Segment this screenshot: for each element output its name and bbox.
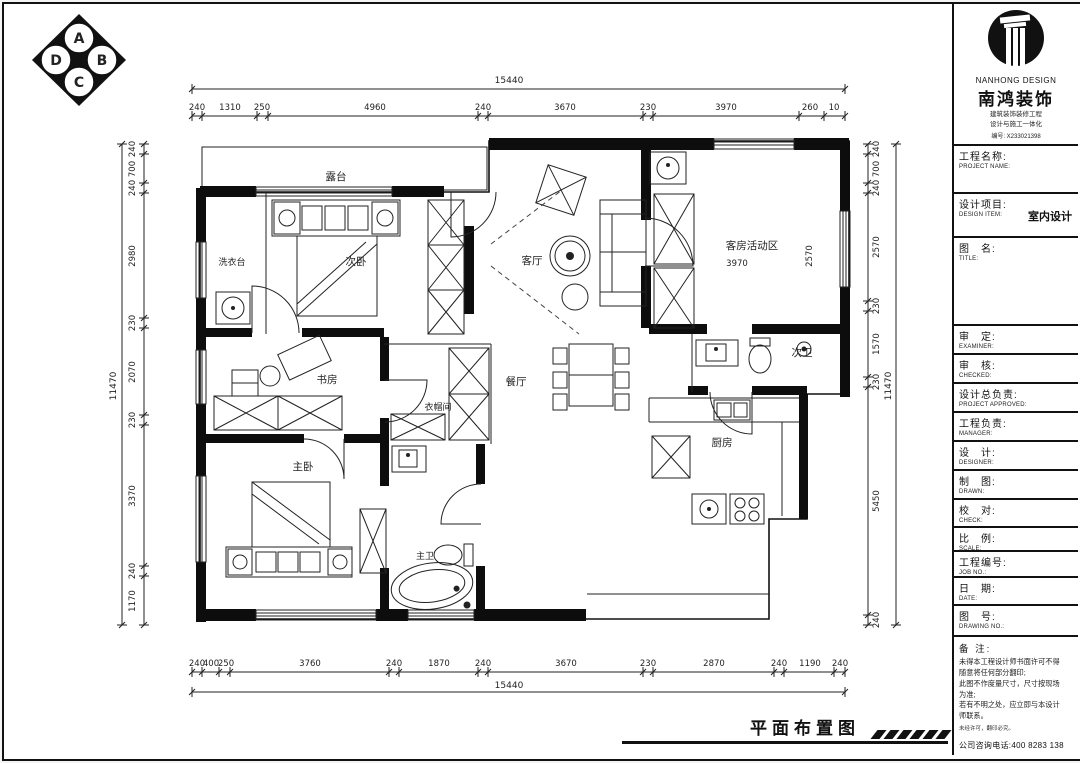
- tb-row-en: DESIGNER:: [959, 460, 1073, 466]
- dim-bot-1: 400: [203, 659, 219, 669]
- dim-bottom-overall: 15440: [495, 681, 524, 691]
- dim-left-4: 230: [128, 315, 138, 331]
- label-dining: 餐厅: [506, 375, 527, 388]
- dim-top-0: 240: [189, 103, 205, 113]
- wardrobe2-icon: [428, 200, 464, 334]
- dim-right-overall: 11470: [884, 371, 894, 400]
- logo-letter-c: C: [74, 75, 84, 91]
- tb-row-date: 日 期: DATE:: [954, 578, 1078, 607]
- label-study: 书房: [317, 373, 338, 386]
- label-guest-w: 3970: [726, 259, 748, 269]
- tb-row-drawn: 制 图: DRAWN:: [954, 471, 1078, 500]
- tb-row-title: 图 名: TITLE:: [954, 238, 1078, 326]
- tb-row-cn: 工程编号:: [959, 554, 1073, 569]
- dim-left-1: 700: [128, 161, 138, 177]
- tb-row-cn: 日 期:: [959, 580, 1073, 595]
- master-wardrobe-icon: [360, 509, 386, 573]
- tb-row-cn: 校 对:: [959, 502, 1073, 517]
- dim-right-8: 240: [872, 612, 882, 628]
- floor-plan-drawing: A B C D 15440 240 1310 250 4960 240 3670…: [4, 4, 952, 755]
- drawing-title: 平面布置图: [750, 714, 860, 739]
- tb-row-cn: 图 名:: [959, 240, 1073, 255]
- dim-bot-5: 1870: [428, 659, 450, 669]
- label-laundry: 洗衣台: [218, 256, 245, 268]
- drawing-sheet: A B C D 15440 240 1310 250 4960 240 3670…: [2, 2, 1080, 761]
- tb-row-cn: 工程名称:: [959, 148, 1073, 163]
- corner-diamond-logo: A B C D: [32, 14, 126, 106]
- tb-row-cn: 设 计:: [959, 444, 1073, 459]
- remarks-line: 为准;: [959, 690, 1073, 701]
- dim-left-3: 2980: [128, 245, 138, 267]
- dim-right-1: 700: [872, 161, 882, 177]
- label-master: 主卧: [293, 460, 314, 473]
- tb-row-cn: 比 例:: [959, 530, 1073, 545]
- guest-cabinet-icon: [654, 194, 694, 328]
- logo-letter-b: B: [97, 53, 108, 69]
- remarks-tiny-line: 未经许可，翻印必究。: [959, 724, 1073, 732]
- tb-row-cn: 工程负责:: [959, 415, 1073, 430]
- tb-remarks: 备 注: 未得本工程设计师书面许可不得 随意将任何部分翻印; 此图不作度量尺寸，…: [954, 637, 1078, 755]
- brand-license: 编号: X233021398: [959, 131, 1073, 140]
- label-master-bath: 主卫: [416, 550, 434, 562]
- title-block: NANHONG DESIGN 南鸿装饰 建筑装饰装修工程 设计与施工一体化 编号…: [952, 4, 1078, 755]
- remarks-line: 师联系。: [959, 711, 1073, 722]
- tb-row-en: DRAWN:: [959, 489, 1073, 495]
- dining-table-icon: [553, 344, 629, 410]
- tb-row-en: CHECK:: [959, 518, 1073, 524]
- dim-top-5: 3670: [554, 103, 576, 113]
- dim-right-4: 230: [872, 298, 882, 314]
- dim-top-7: 3970: [715, 103, 737, 113]
- side-table-icon: [550, 236, 590, 310]
- dim-left-7: 3370: [128, 485, 138, 507]
- dim-bot-2: 250: [218, 659, 234, 669]
- tb-row-cn: 图 号:: [959, 608, 1073, 623]
- logo-letter-a: A: [74, 31, 85, 47]
- label-bedroom2: 次卧: [346, 255, 367, 268]
- dim-left-2: 240: [128, 180, 138, 196]
- label-cloakroom: 衣帽间: [424, 401, 451, 413]
- dim-right-3: 2570: [872, 236, 882, 258]
- dim-top-4: 240: [475, 103, 491, 113]
- remarks-line: 未得本工程设计师书面许可不得: [959, 657, 1073, 668]
- sofa-icon: [600, 200, 646, 306]
- dim-bot-7: 3670: [555, 659, 577, 669]
- tb-row-check: 校 对: CHECK:: [954, 500, 1078, 528]
- dim-top-8: 260: [802, 103, 818, 113]
- tb-row-drawing-no: 图 号: DRAWING NO.:: [954, 606, 1078, 637]
- kitchen-counter-icon: [649, 398, 799, 524]
- tb-row-job-no: 工程编号: JOB NO.:: [954, 552, 1078, 578]
- label-guest-h: 2570: [805, 245, 815, 267]
- tb-row-cn: 审 定:: [959, 328, 1073, 343]
- brand-cert-line1: 建筑装饰装修工程: [959, 110, 1073, 120]
- brand-name-cn: 南鸿装饰: [959, 85, 1073, 110]
- tb-row-en: DATE:: [959, 596, 1073, 602]
- dim-left-8: 240: [128, 563, 138, 579]
- design-item-value: 室内设计: [1028, 208, 1072, 224]
- dimension-bottom: 240 400 250 3760 240 1870 240 3670 230 2…: [189, 659, 848, 697]
- master-bath-fixtures: [388, 446, 476, 614]
- tb-row-cn: 审 核:: [959, 357, 1073, 372]
- dim-top-3: 4960: [364, 103, 386, 113]
- tb-row-designer: 设 计: DESIGNER:: [954, 442, 1078, 471]
- logo-letter-d: D: [50, 53, 62, 69]
- bed2-icon: [272, 200, 400, 316]
- master-bed-icon: [226, 482, 352, 577]
- dim-left-overall: 11470: [109, 371, 119, 400]
- tb-row-cn: 设计总负责:: [959, 386, 1073, 401]
- dim-top-9: 10: [829, 103, 840, 113]
- dim-bot-3: 3760: [299, 659, 321, 669]
- cloak-cabinet-icon: [391, 348, 489, 440]
- label-guest-area: 客房活动区: [726, 239, 779, 252]
- tb-row-scale: 比 例: SCALE:: [954, 528, 1078, 552]
- dim-top-overall: 15440: [495, 76, 524, 86]
- company-phone: 公司咨询电话:400 8283 138: [959, 740, 1073, 751]
- dim-right-5: 1570: [872, 333, 882, 355]
- dim-right-7: 5450: [872, 490, 882, 512]
- tb-row-project-approved: 设计总负责: PROJECT APPROVED:: [954, 384, 1078, 413]
- tb-row-manager: 工程负责: MANAGER:: [954, 413, 1078, 442]
- tb-row-en: JOB NO.:: [959, 570, 1073, 576]
- dim-right-2: 240: [872, 180, 882, 196]
- footer-title-bar: 平面布置图: [622, 714, 948, 744]
- company-logo-icon: [984, 8, 1048, 70]
- tb-row-en: MANAGER:: [959, 431, 1073, 437]
- dim-bot-12: 240: [832, 659, 848, 669]
- tb-row-design-item: 设计项目: DESIGN ITEM: 室内设计: [954, 194, 1078, 238]
- dim-top-1: 1310: [219, 103, 241, 113]
- brand-name-en: NANHONG DESIGN: [959, 76, 1073, 85]
- dim-bot-9: 2870: [703, 659, 725, 669]
- dim-left-6: 230: [128, 412, 138, 428]
- tb-row-en: TITLE:: [959, 256, 1073, 262]
- remarks-line: 若有不明之处，应立即与本设计: [959, 700, 1073, 711]
- tb-row-en: DRAWING NO.:: [959, 624, 1073, 630]
- tb-row-project-name: 工程名称: PROJECT NAME:: [954, 146, 1078, 194]
- tb-row-en: CHECKED:: [959, 373, 1073, 379]
- label-terrace: 露台: [326, 170, 347, 183]
- label-kitchen: 厨房: [712, 436, 733, 449]
- label-bath2: 次卫: [792, 346, 813, 359]
- company-logo-section: NANHONG DESIGN 南鸿装饰 建筑装饰装修工程 设计与施工一体化 编号…: [954, 4, 1078, 146]
- dim-left-9: 1170: [128, 590, 138, 612]
- tb-row-cn: 制 图:: [959, 473, 1073, 488]
- dim-bot-8: 230: [640, 659, 656, 669]
- tb-row-en: PROJECT NAME:: [959, 164, 1073, 170]
- remarks-line: 随意将任何部分翻印;: [959, 668, 1073, 679]
- tb-row-examiner: 审 定: EXAMINER:: [954, 326, 1078, 355]
- dim-right-0: 240: [872, 141, 882, 157]
- tb-row-en: PROJECT APPROVED:: [959, 402, 1073, 408]
- dimension-top: 15440 240 1310 250 4960 240 3670 230 397…: [189, 76, 848, 121]
- door-symbols: [252, 192, 752, 524]
- brand-cert-line2: 设计与施工一体化: [959, 120, 1073, 130]
- dim-bot-4: 240: [386, 659, 402, 669]
- ceiling-lamp-icon: [536, 165, 586, 215]
- washer-icon: [216, 292, 250, 324]
- dimension-right: 240 700 240 2570 230 1570 230 5450 240 1…: [863, 141, 901, 628]
- dim-top-6: 230: [640, 103, 656, 113]
- dim-left-5: 2070: [128, 361, 138, 383]
- dim-bot-10: 240: [771, 659, 787, 669]
- dim-bot-11: 1190: [799, 659, 821, 669]
- label-living: 客厅: [522, 254, 543, 267]
- dim-bot-6: 240: [475, 659, 491, 669]
- remarks-line: 此图不作度量尺寸，尺寸按现场: [959, 679, 1073, 690]
- remarks-label: 备 注:: [959, 641, 1073, 655]
- dim-right-6: 230: [872, 374, 882, 390]
- dim-left-0: 240: [128, 141, 138, 157]
- tb-row-checked: 审 核: CHECKED:: [954, 355, 1078, 384]
- tb-row-en: EXAMINER:: [959, 344, 1073, 350]
- dimension-left: 240 700 240 2980 230 2070 230 3370 240 1…: [109, 141, 149, 628]
- dim-top-2: 250: [254, 103, 270, 113]
- entry-basin-icon: [650, 152, 686, 184]
